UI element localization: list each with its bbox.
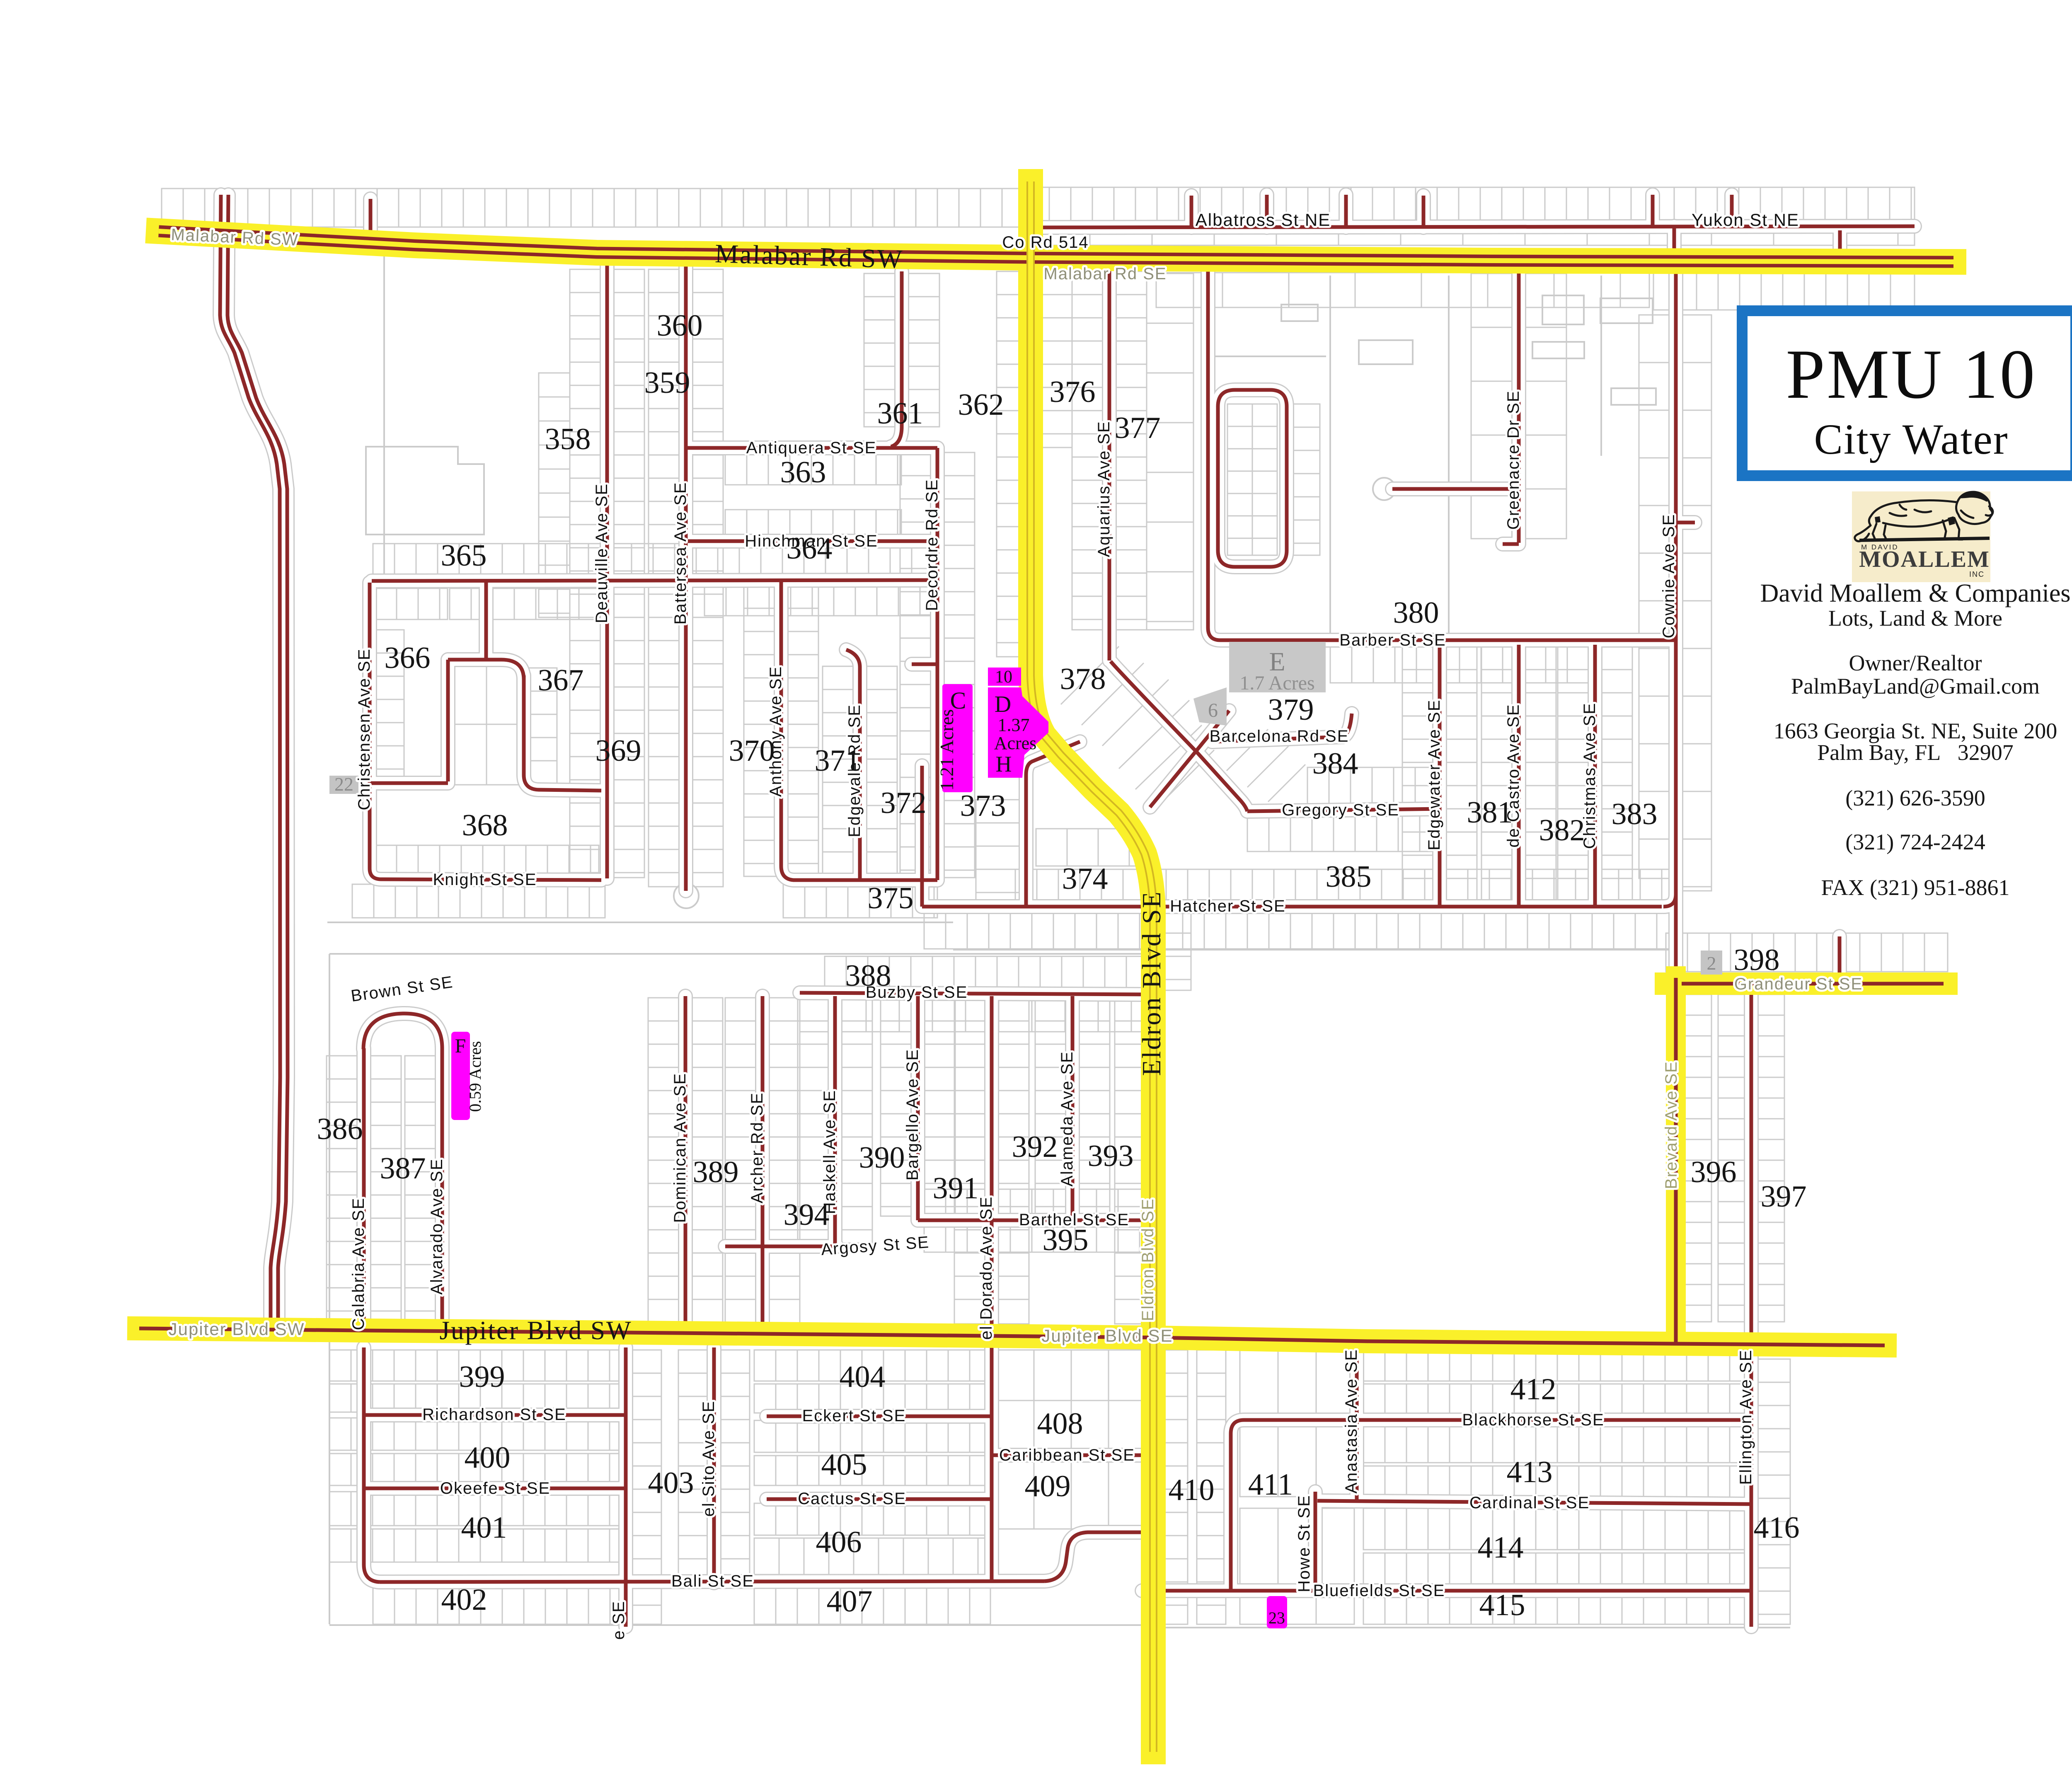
- svg-text:Anthony Ave SE: Anthony Ave SE: [767, 666, 785, 797]
- svg-text:388: 388: [845, 959, 891, 993]
- svg-text:387: 387: [380, 1151, 426, 1185]
- svg-text:Lots, Land & More: Lots, Land & More: [1828, 606, 2002, 631]
- svg-text:374: 374: [1062, 862, 1108, 896]
- svg-text:401: 401: [461, 1511, 507, 1545]
- svg-text:Cactus St SE: Cactus St SE: [798, 1490, 906, 1508]
- svg-text:359: 359: [644, 366, 690, 400]
- svg-text:381: 381: [1467, 796, 1513, 830]
- svg-text:City Water: City Water: [1814, 416, 2009, 463]
- svg-text:Christensen Ave SE: Christensen Ave SE: [355, 648, 373, 810]
- svg-text:Barcelona Rd SE: Barcelona Rd SE: [1210, 727, 1349, 745]
- svg-text:2: 2: [1707, 953, 1716, 974]
- svg-text:Jupiter Blvd SW: Jupiter Blvd SW: [440, 1316, 632, 1345]
- svg-text:e SE: e SE: [610, 1601, 628, 1640]
- svg-text:Blackhorse St SE: Blackhorse St SE: [1462, 1411, 1604, 1429]
- svg-text:Cardinal St SE: Cardinal St SE: [1469, 1494, 1590, 1512]
- svg-text:Antiquera St SE: Antiquera St SE: [746, 439, 877, 457]
- svg-text:413: 413: [1507, 1455, 1553, 1489]
- svg-text:Aquarius Ave SE: Aquarius Ave SE: [1095, 421, 1113, 557]
- svg-text:402: 402: [441, 1583, 487, 1617]
- svg-text:Palm Bay, FL 32907: Palm Bay, FL 32907: [1817, 740, 2014, 765]
- svg-text:Malabar Rd SW: Malabar Rd SW: [714, 239, 904, 274]
- svg-text:Eldron Blvd SE: Eldron Blvd SE: [1139, 1198, 1157, 1321]
- svg-text:Greenacre Dr SE: Greenacre Dr SE: [1504, 390, 1523, 530]
- svg-text:361: 361: [877, 397, 923, 431]
- svg-text:Alameda Ave SE: Alameda Ave SE: [1058, 1051, 1076, 1186]
- svg-text:397: 397: [1761, 1180, 1807, 1214]
- svg-text:Alvarado Ave SE: Alvarado Ave SE: [428, 1158, 446, 1294]
- svg-text:411: 411: [1248, 1468, 1293, 1502]
- svg-text:H: H: [996, 752, 1012, 776]
- svg-text:362: 362: [958, 388, 1004, 422]
- svg-text:10: 10: [995, 668, 1012, 687]
- svg-text:el Sito Ave SE: el Sito Ave SE: [700, 1401, 718, 1517]
- svg-text:391: 391: [933, 1171, 979, 1205]
- svg-text:Owner/Realtor: Owner/Realtor: [1849, 651, 1982, 675]
- svg-text:380: 380: [1393, 596, 1439, 630]
- svg-text:364: 364: [787, 532, 833, 566]
- svg-text:Eldron Blvd SE: Eldron Blvd SE: [1137, 890, 1166, 1076]
- svg-text:383: 383: [1612, 797, 1658, 831]
- svg-text:6: 6: [1208, 699, 1218, 721]
- svg-text:363: 363: [780, 455, 826, 489]
- svg-text:358: 358: [545, 422, 591, 456]
- svg-text:Barber St SE: Barber St SE: [1339, 631, 1446, 649]
- svg-text:399: 399: [459, 1360, 505, 1394]
- svg-text:393: 393: [1088, 1139, 1134, 1173]
- svg-text:Jupiter Blvd SE: Jupiter Blvd SE: [1041, 1326, 1173, 1345]
- svg-text:Deauville Ave SE: Deauville Ave SE: [593, 483, 611, 623]
- svg-text:Caribbean St SE: Caribbean St SE: [999, 1446, 1135, 1464]
- svg-text:Brevard Ave SE: Brevard Ave SE: [1662, 1061, 1680, 1189]
- svg-text:PMU 10: PMU 10: [1786, 335, 2037, 413]
- svg-text:Co Rd 514: Co Rd 514: [1002, 233, 1089, 252]
- svg-text:372: 372: [881, 786, 927, 820]
- svg-text:1.37: 1.37: [998, 715, 1030, 735]
- svg-text:389: 389: [693, 1155, 739, 1189]
- svg-text:407: 407: [827, 1584, 873, 1618]
- svg-text:400: 400: [465, 1441, 511, 1475]
- svg-text:369: 369: [595, 734, 641, 768]
- svg-text:382: 382: [1539, 813, 1585, 847]
- svg-text:Haskell Ave SE: Haskell Ave SE: [821, 1090, 839, 1214]
- svg-text:1663 Georgia St. NE, Suite 200: 1663 Georgia St. NE, Suite 200: [1774, 718, 2057, 743]
- svg-text:FAX (321) 951-8861: FAX (321) 951-8861: [1821, 875, 2010, 900]
- svg-text:394: 394: [784, 1198, 830, 1232]
- svg-text:23: 23: [1268, 1609, 1285, 1627]
- svg-text:385: 385: [1326, 860, 1372, 894]
- svg-text:1.21 Acres: 1.21 Acres: [936, 709, 957, 791]
- svg-text:Albatross St NE: Albatross St NE: [1196, 210, 1331, 230]
- svg-text:Knight St SE: Knight St SE: [433, 871, 537, 889]
- svg-text:398: 398: [1734, 943, 1780, 977]
- svg-text:370: 370: [729, 734, 775, 768]
- svg-text:408: 408: [1037, 1407, 1083, 1441]
- svg-text:(321) 724-2424: (321) 724-2424: [1845, 830, 1985, 854]
- svg-text:406: 406: [816, 1525, 862, 1559]
- svg-text:416: 416: [1754, 1511, 1800, 1545]
- svg-text:404: 404: [840, 1360, 886, 1394]
- svg-text:365: 365: [441, 539, 487, 573]
- svg-text:366: 366: [385, 641, 431, 675]
- svg-text:403: 403: [648, 1466, 694, 1500]
- svg-text:el Dorado Ave SE: el Dorado Ave SE: [977, 1196, 995, 1340]
- svg-text:Bargello Ave SE: Bargello Ave SE: [903, 1049, 922, 1180]
- svg-text:378: 378: [1060, 662, 1106, 696]
- svg-text:(321) 626-3590: (321) 626-3590: [1845, 786, 1985, 810]
- svg-text:Anastasia Ave SE: Anastasia Ave SE: [1342, 1349, 1360, 1493]
- svg-text:367: 367: [538, 663, 584, 697]
- svg-text:Edgewater Ave SE: Edgewater Ave SE: [1425, 699, 1443, 851]
- svg-text:INC: INC: [1969, 570, 1985, 578]
- svg-text:F: F: [455, 1035, 466, 1057]
- svg-text:396: 396: [1691, 1155, 1737, 1189]
- svg-text:376: 376: [1050, 375, 1096, 409]
- svg-text:384: 384: [1312, 747, 1358, 781]
- svg-text:392: 392: [1012, 1130, 1058, 1164]
- svg-text:Decordre Rd SE: Decordre Rd SE: [923, 479, 941, 611]
- svg-text:368: 368: [462, 808, 508, 842]
- svg-text:David Moallem & Companies: David Moallem & Companies: [1760, 579, 2070, 607]
- svg-text:Acres: Acres: [994, 733, 1037, 753]
- svg-text:386: 386: [317, 1112, 363, 1146]
- svg-text:Jupiter Blvd SW: Jupiter Blvd SW: [169, 1319, 305, 1339]
- svg-text:379: 379: [1268, 693, 1314, 727]
- svg-text:415: 415: [1479, 1588, 1525, 1622]
- svg-text:390: 390: [859, 1141, 905, 1175]
- svg-text:371: 371: [815, 744, 861, 778]
- svg-text:Eckert St SE: Eckert St SE: [802, 1407, 906, 1425]
- svg-text:360: 360: [657, 309, 703, 343]
- svg-text:Grandeur St SE: Grandeur St SE: [1734, 975, 1863, 993]
- svg-text:MOALLEM: MOALLEM: [1859, 547, 1990, 572]
- svg-text:Archer Rd SE: Archer Rd SE: [748, 1092, 766, 1204]
- svg-text:414: 414: [1478, 1531, 1524, 1565]
- svg-text:Cownie Ave SE: Cownie Ave SE: [1660, 514, 1678, 639]
- svg-text:Hatcher St SE: Hatcher St SE: [1170, 897, 1285, 915]
- svg-text:1.7 Acres: 1.7 Acres: [1239, 672, 1314, 694]
- svg-text:D: D: [995, 692, 1011, 717]
- svg-text:405: 405: [821, 1448, 867, 1482]
- svg-text:Battersea Ave SE: Battersea Ave SE: [671, 482, 690, 625]
- svg-text:Howe St SE: Howe St SE: [1295, 1495, 1313, 1592]
- svg-text:Okeefe St SE: Okeefe St SE: [440, 1479, 550, 1497]
- svg-text:395: 395: [1043, 1223, 1089, 1257]
- svg-text:0.59 Acres: 0.59 Acres: [466, 1041, 484, 1112]
- svg-text:409: 409: [1025, 1469, 1071, 1503]
- svg-text:Bluefields St SE: Bluefields St SE: [1313, 1582, 1445, 1600]
- svg-text:Yukon St NE: Yukon St NE: [1692, 210, 1799, 230]
- svg-text:Richardson St SE: Richardson St SE: [422, 1405, 566, 1424]
- svg-text:Calabria Ave SE: Calabria Ave SE: [349, 1197, 368, 1330]
- svg-text:377: 377: [1115, 411, 1161, 445]
- svg-text:412: 412: [1510, 1372, 1556, 1406]
- svg-text:375: 375: [868, 881, 914, 915]
- svg-text:PalmBayLand@Gmail.com: PalmBayLand@Gmail.com: [1791, 674, 2040, 699]
- svg-text:410: 410: [1169, 1473, 1215, 1507]
- svg-text:22: 22: [334, 774, 353, 795]
- svg-text:Dominican Ave SE: Dominican Ave SE: [671, 1073, 689, 1223]
- svg-text:Gregory St SE: Gregory St SE: [1282, 801, 1399, 819]
- svg-text:Malabar Rd SE: Malabar Rd SE: [1043, 265, 1167, 283]
- svg-text:373: 373: [960, 789, 1006, 823]
- svg-text:Bali St SE: Bali St SE: [671, 1572, 754, 1590]
- svg-text:Ellington Ave SE: Ellington Ave SE: [1737, 1349, 1755, 1485]
